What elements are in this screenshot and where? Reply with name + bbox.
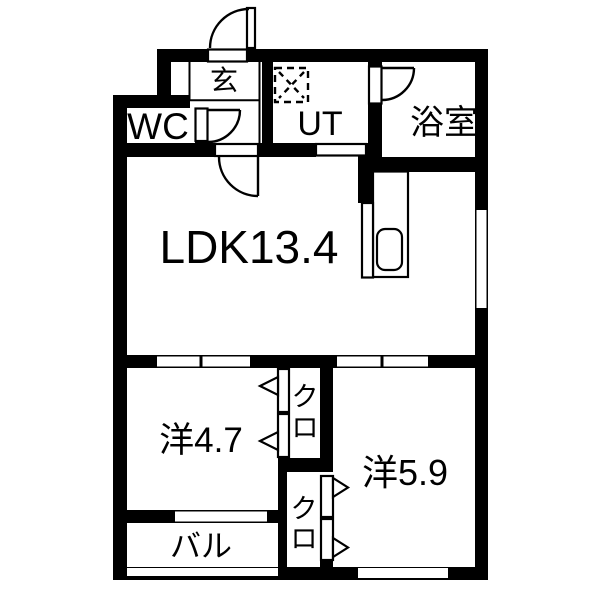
wall-ut-left [262, 62, 273, 157]
closet-lower-door-panel-b [321, 519, 333, 560]
window-ldk-right [477, 210, 487, 308]
label-bathroom: 浴室 [410, 104, 478, 142]
floorplan-canvas: 玄 WC UT 浴室 LDK13.4 洋4.7 洋5.9 ク ロ ク ロ バル [0, 0, 600, 600]
label-bedroom-east: 洋5.9 [362, 452, 448, 493]
label-bedroom-west: 洋4.7 [159, 421, 243, 460]
floorplan-svg: 玄 WC UT 浴室 LDK13.4 洋4.7 洋5.9 ク ロ ク ロ バル [0, 0, 600, 600]
ldk-door-panel [215, 144, 258, 156]
sliding-door-ldk-east-a [337, 357, 381, 367]
label-closet-upper-top: ク [292, 382, 319, 412]
label-entrance: 玄 [210, 65, 238, 96]
sliding-door-ldk-east-b [384, 357, 429, 367]
wall-hall-bottom-b [258, 143, 316, 157]
label-closet-lower-bottom: ロ [291, 524, 318, 554]
wall-closet-left [278, 458, 287, 580]
label-closet-upper-bottom: ロ [292, 413, 319, 443]
entrance-door-leaf [247, 8, 255, 48]
label-balcony: バル [170, 529, 232, 564]
closet-upper-door-panel-a [278, 369, 289, 412]
closet-upper-door-panel-b [278, 414, 289, 457]
wc-door-panel [196, 109, 208, 142]
wall-closet-bottom-right [320, 558, 333, 580]
wall-bath-bottom [368, 157, 488, 172]
balcony-railing-gap [127, 568, 278, 576]
bathroom-door-panel [369, 67, 382, 104]
entrance-door-opening [208, 50, 247, 62]
label-utility: UT [297, 105, 342, 143]
sliding-door-ldk-west-a [157, 357, 200, 367]
ut-door-panel [316, 144, 366, 156]
window-bedroom-west [175, 512, 267, 522]
label-wc: WC [127, 106, 189, 147]
wall-bath-divider-top [368, 49, 382, 66]
sliding-door-ldk-west-b [203, 357, 251, 367]
kitchen-counter-side [362, 203, 373, 278]
kitchen-sink-icon [377, 229, 402, 270]
closet-lower-door-panel-a [321, 476, 333, 517]
wall-top [157, 49, 488, 62]
label-ldk: LDK13.4 [159, 221, 338, 273]
wall-upper-left [157, 49, 171, 95]
wall-closet-right [320, 355, 333, 472]
label-closet-lower-top: ク [291, 494, 318, 524]
wall-left [113, 95, 127, 580]
window-bedroom-east [358, 568, 448, 578]
